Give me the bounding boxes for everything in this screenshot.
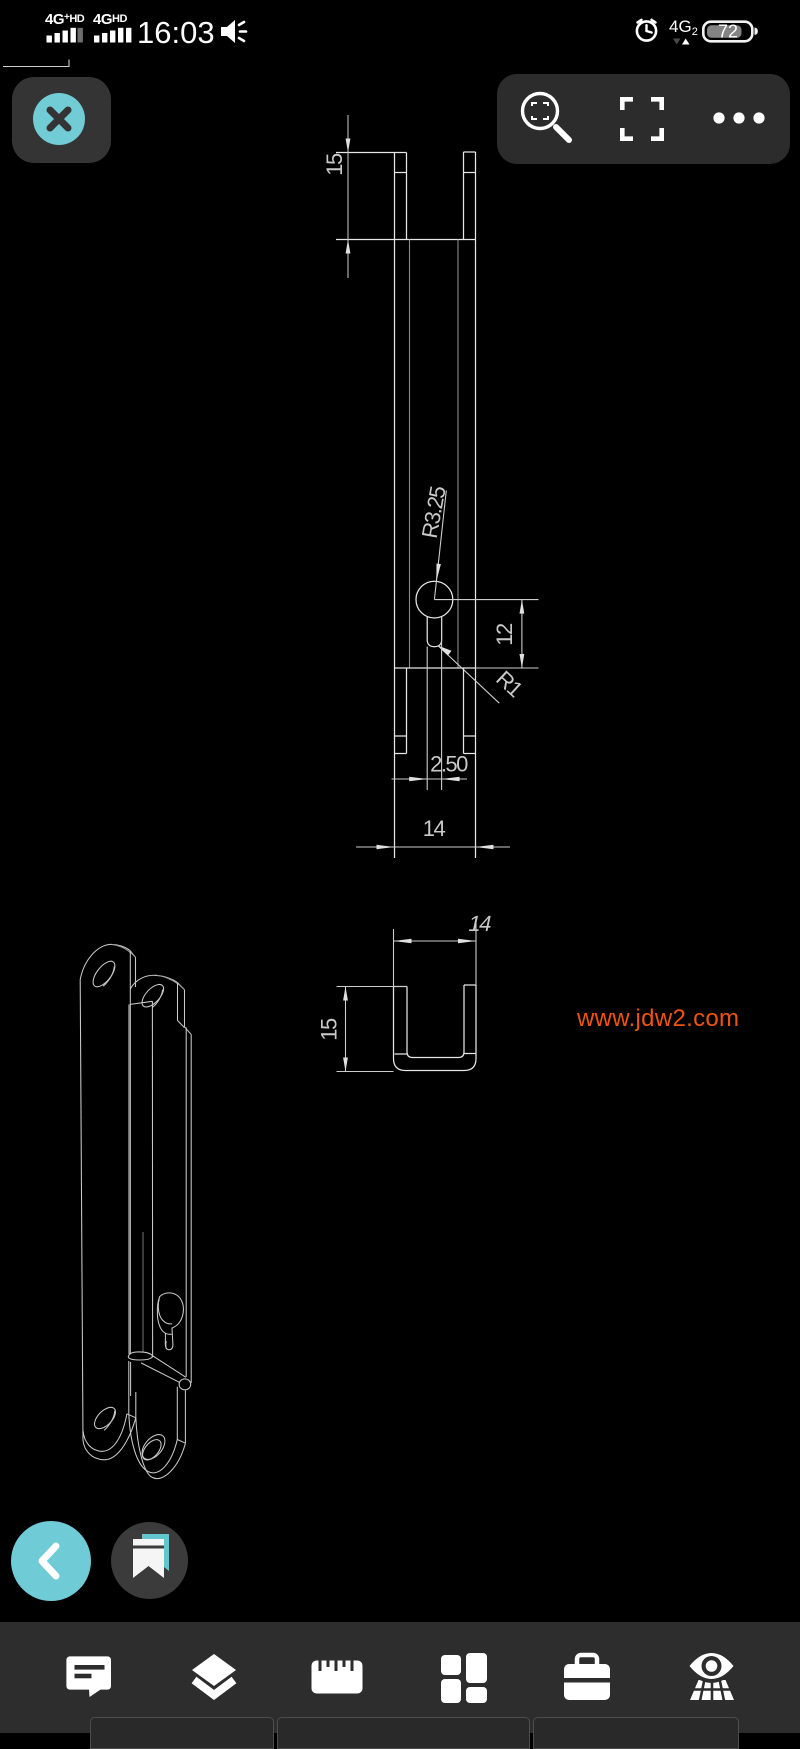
svg-text:15: 15: [322, 153, 347, 176]
svg-text:12: 12: [492, 623, 517, 646]
svg-text:R1: R1: [491, 666, 527, 702]
svg-text:2.50: 2.50: [430, 752, 468, 777]
svg-text:15: 15: [317, 1018, 342, 1041]
svg-text:R3.25: R3.25: [417, 484, 451, 540]
svg-text:www.jdw2.com: www.jdw2.com: [576, 1005, 739, 1032]
svg-text:14: 14: [423, 816, 446, 841]
svg-text:14: 14: [466, 911, 494, 936]
